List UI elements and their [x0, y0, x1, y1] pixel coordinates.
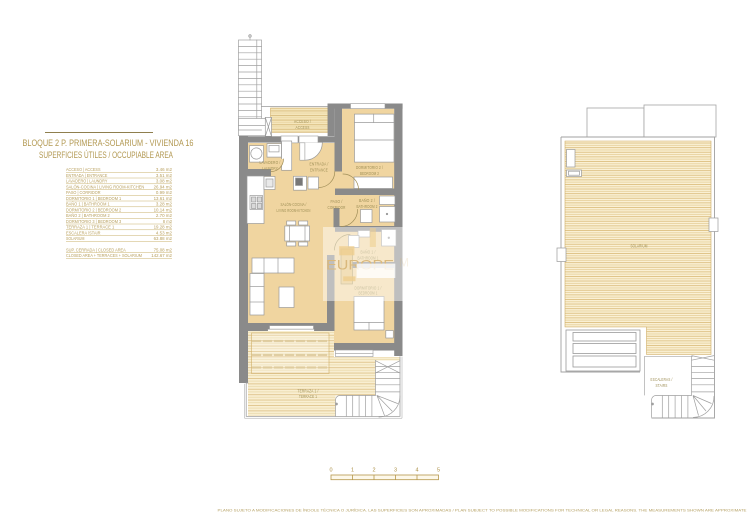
svg-text:DORMITORIO 3 | BEDROOM 3: DORMITORIO 3 | BEDROOM 3 [66, 219, 122, 224]
svg-text:2.70 m2: 2.70 m2 [156, 213, 173, 218]
svg-text:BATHROOM 2: BATHROOM 2 [357, 204, 378, 209]
svg-text:LAUNDRY: LAUNDRY [262, 166, 278, 171]
svg-text:SOLARIUM: SOLARIUM [66, 236, 85, 241]
svg-text:ACCESO | ACCESS: ACCESO | ACCESS [66, 167, 101, 172]
svg-text:TERRAZA 1 | TERRACE 1: TERRAZA 1 | TERRACE 1 [66, 225, 115, 230]
svg-text:BAÑO 2 | BATHROOM 2: BAÑO 2 | BATHROOM 2 [66, 212, 110, 218]
svg-text:3.08 m2: 3.08 m2 [156, 179, 173, 184]
svg-text:SALÓN-COCINA /: SALÓN-COCINA / [281, 202, 307, 207]
svg-text:13.61 m2: 13.61 m2 [154, 196, 173, 201]
svg-text:3.46 m2: 3.46 m2 [156, 167, 173, 172]
svg-text:PASO /: PASO / [331, 199, 343, 204]
svg-text:SOLARIUM: SOLARIUM [631, 244, 648, 249]
svg-text:SALÓN-COCINA | LIVING ROOM-KIT: SALÓN-COCINA | LIVING ROOM-KITCHEN [66, 183, 144, 189]
svg-text:LAVADERO /: LAVADERO / [260, 160, 281, 165]
svg-text:3.28 m2: 3.28 m2 [156, 202, 173, 207]
svg-text:M: M [399, 256, 409, 270]
svg-text:ACCESO /: ACCESO / [294, 119, 311, 124]
svg-text:4: 4 [415, 468, 418, 474]
svg-text:SUP. CERRADA | CLOSED AREA: SUP. CERRADA | CLOSED AREA [66, 248, 126, 253]
svg-text:19.28 m2: 19.28 m2 [154, 225, 173, 230]
svg-text:ENTRADA /: ENTRADA / [310, 162, 329, 167]
svg-text:BLOQUE 2 P. PRIMERA-SOLARIUM -: BLOQUE 2 P. PRIMERA-SOLARIUM - VIVIENDA … [23, 138, 194, 148]
svg-text:4.53 m2: 4.53 m2 [156, 230, 173, 235]
svg-text:STAIRS: STAIRS [656, 383, 668, 388]
svg-text:LAVADERO | LAUNDRY: LAVADERO | LAUNDRY [66, 179, 107, 184]
svg-text:10.14 m2: 10.14 m2 [154, 207, 173, 212]
svg-text:ENTRANCE: ENTRANCE [310, 168, 328, 173]
svg-text:TERRACE 1: TERRACE 1 [299, 394, 317, 399]
svg-text:142.67 m2: 142.67 m2 [151, 253, 172, 258]
svg-text:CLOSED AREA + TERRACES + SOLAR: CLOSED AREA + TERRACES + SOLARIUM [66, 253, 142, 258]
svg-text:DORMITORIO 2 /: DORMITORIO 2 / [356, 165, 383, 170]
svg-text:26.94 m2: 26.94 m2 [154, 184, 173, 189]
svg-text:CORRIDOR: CORRIDOR [328, 205, 346, 210]
svg-text:BAÑO 1 | BATHROOM 1: BAÑO 1 | BATHROOM 1 [66, 201, 110, 207]
svg-text:ACCESS: ACCESS [296, 125, 310, 130]
svg-text:75.08 m2: 75.08 m2 [154, 248, 173, 253]
svg-text:LIVING ROOM-KITCHEN: LIVING ROOM-KITCHEN [277, 208, 311, 213]
svg-text:63.88 m2: 63.88 m2 [154, 236, 173, 241]
svg-text:BEDROOM 2: BEDROOM 2 [360, 171, 379, 176]
svg-text:ENTRADA | ENTRANCE: ENTRADA | ENTRANCE [66, 173, 107, 178]
svg-text:2: 2 [372, 468, 375, 474]
svg-text:0.99 m2: 0.99 m2 [156, 190, 173, 195]
svg-text:3.51 m2: 3.51 m2 [156, 173, 173, 178]
svg-text:0: 0 [329, 468, 332, 474]
svg-text:DORMITORIO 2 | BEDROOM 2: DORMITORIO 2 | BEDROOM 2 [66, 207, 122, 212]
svg-text:PASO | CORRIDOR: PASO | CORRIDOR [66, 190, 101, 195]
svg-text:5: 5 [437, 468, 440, 474]
svg-text:DORMITORIO 1 | BEDROOM 1: DORMITORIO 1 | BEDROOM 1 [66, 196, 122, 201]
svg-text:3: 3 [394, 468, 397, 474]
svg-text:SUPERFICIES ÚTILES / OCCUPIABL: SUPERFICIES ÚTILES / OCCUPIABLE AREA [39, 150, 174, 160]
svg-text:TERRAZA 1 /: TERRAZA 1 / [298, 389, 319, 394]
svg-text:ESCALERA /STAIR: ESCALERA /STAIR [66, 230, 101, 235]
svg-text:8 m2: 8 m2 [163, 219, 173, 224]
svg-text:BAÑO 2 /: BAÑO 2 / [359, 198, 375, 203]
svg-text:PLANO SUJETO A MODIFICACIONES: PLANO SUJETO A MODIFICACIONES DE ÍNDOLE … [218, 508, 748, 513]
svg-text:1: 1 [351, 468, 354, 474]
svg-text:ESCALERAS /: ESCALERAS / [651, 377, 673, 382]
